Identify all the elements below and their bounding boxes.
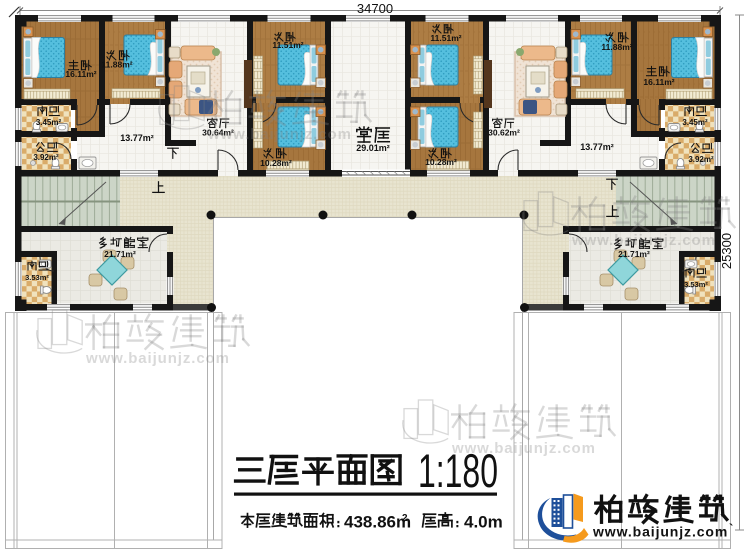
svg-text:`: ` (729, 521, 733, 536)
svg-text:11.88m²: 11.88m² (601, 42, 632, 52)
svg-text:21.71m²: 21.71m² (618, 249, 650, 259)
svg-text:www.baijunjz.com: www.baijunjz.com (592, 524, 728, 540)
svg-text:34700: 34700 (357, 1, 393, 16)
svg-text:25300: 25300 (719, 233, 734, 269)
svg-text:11.51m²: 11.51m² (430, 33, 461, 43)
svg-text:3.53m²: 3.53m² (684, 280, 708, 289)
svg-text:16.11m²: 16.11m² (65, 69, 96, 79)
svg-text:3.53m²: 3.53m² (25, 273, 49, 282)
svg-text:29.01m²: 29.01m² (356, 143, 390, 153)
svg-text:։: ։ (455, 514, 460, 530)
svg-text:21.71m²: 21.71m² (104, 249, 136, 259)
svg-text:www.baijunjz.com: www.baijunjz.com (207, 126, 352, 143)
svg-text:10.28m²: 10.28m² (260, 158, 292, 168)
svg-text:30.62m²: 30.62m² (488, 128, 520, 138)
svg-text:www.baijunjz.com: www.baijunjz.com (85, 350, 230, 367)
svg-text:3.92m²: 3.92m² (688, 155, 714, 164)
svg-text:2: 2 (402, 513, 408, 524)
svg-text:13.77m²: 13.77m² (580, 142, 614, 152)
svg-text:www.baijunjz.com: www.baijunjz.com (571, 232, 716, 249)
svg-text:11.51m²: 11.51m² (272, 40, 303, 50)
svg-text:16.11m²: 16.11m² (643, 77, 674, 87)
svg-text:13.77m²: 13.77m² (120, 133, 154, 143)
svg-text:1:180: 1:180 (418, 444, 498, 497)
svg-text:10.28m²: 10.28m² (425, 157, 457, 167)
svg-text:11.88m²: 11.88m² (101, 60, 132, 70)
svg-text:4.0m: 4.0m (464, 513, 503, 532)
svg-text:։: ։ (336, 514, 341, 530)
svg-text:3.45m²: 3.45m² (36, 118, 62, 127)
svg-text:3.45m²: 3.45m² (682, 118, 708, 127)
svg-text:3.92m²: 3.92m² (33, 153, 59, 162)
